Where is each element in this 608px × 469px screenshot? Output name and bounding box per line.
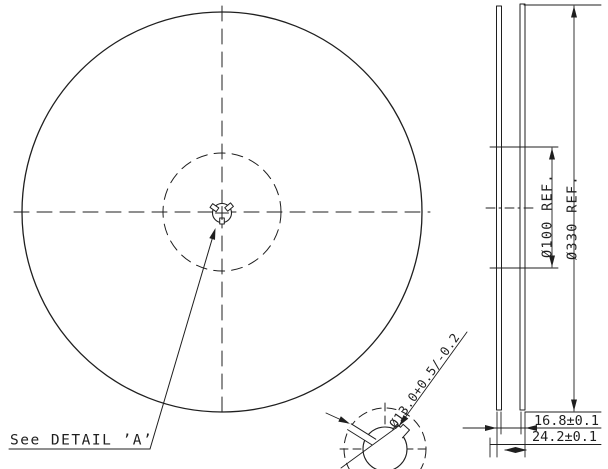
- reel-drawing: See DETAIL ’A’ Ø100 REF. Ø330 REF.: [0, 0, 608, 469]
- arrowhead-icon: [549, 148, 555, 160]
- arrowhead-icon: [571, 400, 577, 412]
- inner-width-label: 16.8±0.1: [534, 413, 599, 429]
- slot-pointer: [326, 413, 351, 427]
- overall-width-label: 24.2±0.1: [532, 429, 597, 445]
- reel-front-view: [9, 6, 430, 449]
- flange-diameter-label: Ø330 REF.: [565, 175, 581, 260]
- arrowhead-icon: [571, 6, 577, 18]
- arbor-hole-label: Ø13.0+0.5/-0.2: [386, 330, 463, 431]
- see-detail-label: See DETAIL ’A’: [10, 433, 153, 449]
- reel-drawing-sheet: See DETAIL ’A’ Ø100 REF. Ø330 REF.: [0, 0, 608, 469]
- arrowhead-icon: [338, 416, 351, 426]
- hub-keyhole: [210, 203, 233, 224]
- arrowhead-icon: [485, 425, 497, 431]
- hub-diameter-label: Ø100 REF.: [540, 173, 556, 258]
- flange-right-outline: [520, 4, 525, 410]
- dim-flange-diameter: [524, 5, 601, 412]
- arrowhead-icon: [504, 447, 516, 453]
- leader-arrowhead-icon: [209, 227, 218, 240]
- leader-line-diagonal: [150, 231, 215, 449]
- detail-callout-leader: [9, 227, 218, 449]
